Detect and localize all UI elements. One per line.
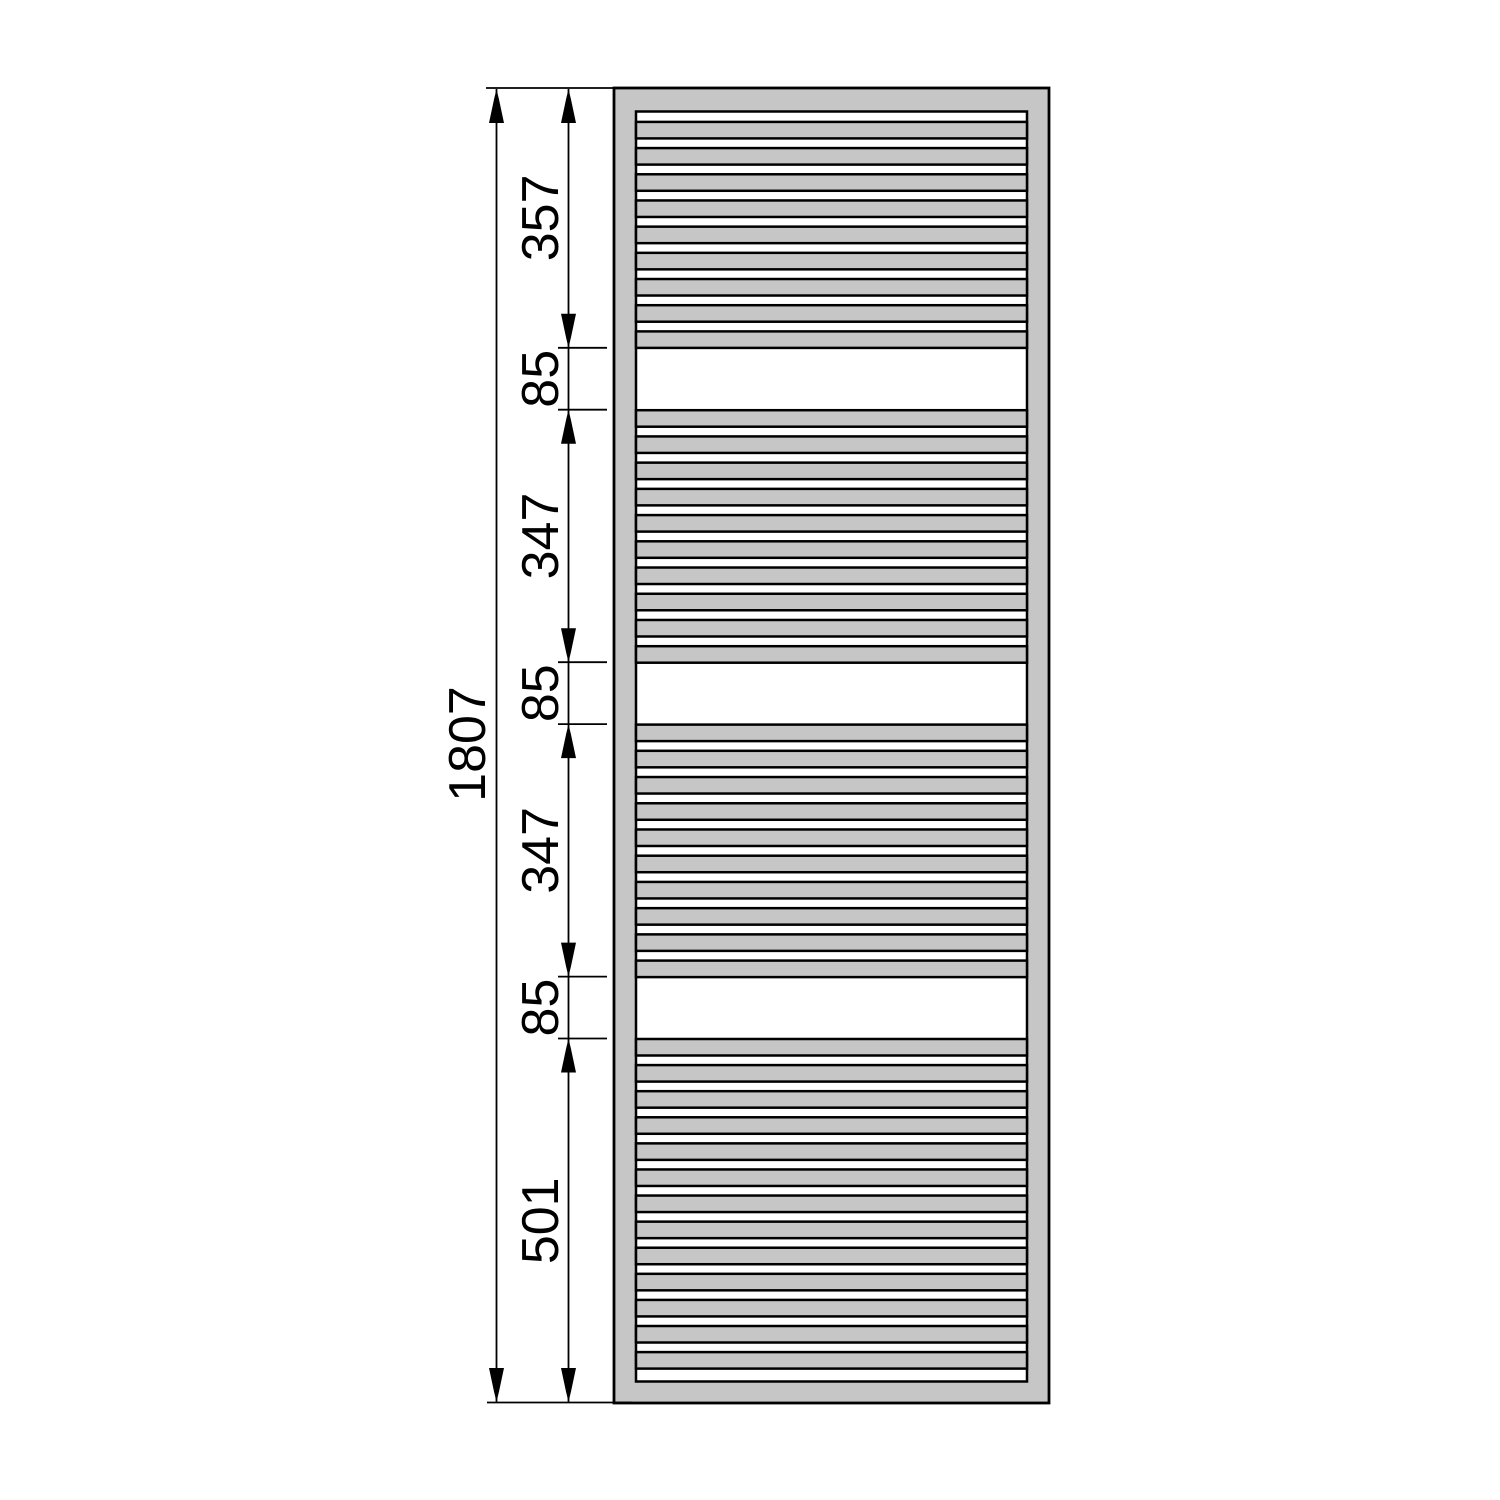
svg-text:347: 347 [512, 807, 570, 894]
svg-text:357: 357 [512, 175, 570, 262]
svg-text:85: 85 [512, 350, 570, 408]
svg-text:85: 85 [512, 979, 570, 1037]
svg-text:501: 501 [512, 1177, 570, 1264]
svg-text:1807: 1807 [439, 686, 497, 802]
svg-text:347: 347 [512, 493, 570, 580]
svg-text:85: 85 [512, 664, 570, 722]
